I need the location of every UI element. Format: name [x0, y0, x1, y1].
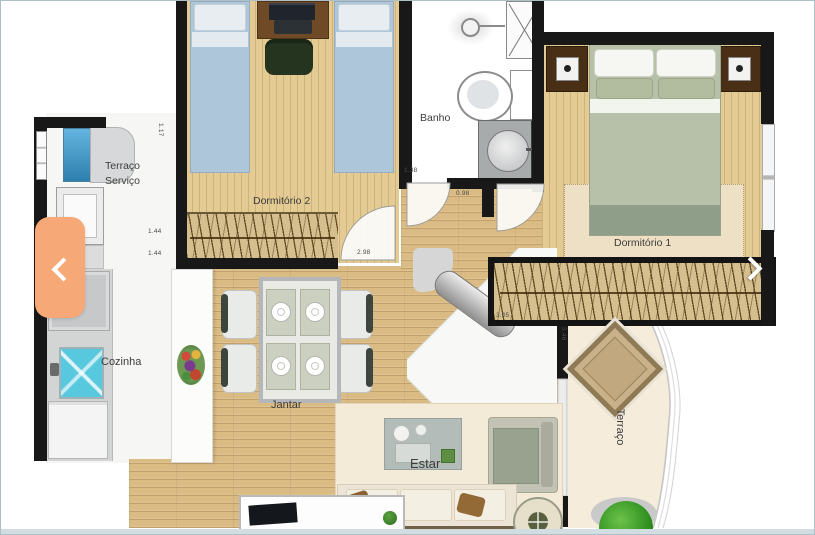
dining-chair: [222, 344, 257, 393]
book: [441, 449, 455, 463]
bed-pillow: [594, 49, 654, 77]
basin-bowl: [487, 130, 529, 172]
room-label-jantar: Jantar: [271, 399, 302, 411]
bed-cushion: [658, 78, 715, 99]
sofa-cushion: [400, 489, 452, 521]
bed-sheet-fold: [590, 99, 720, 113]
single-bed: [190, 1, 250, 173]
next-image-button[interactable]: [736, 248, 770, 288]
refrigerator: [48, 401, 108, 459]
armchair-back: [541, 422, 553, 487]
kitchen-sink: [59, 347, 104, 399]
dimension-label: 3.46: [560, 327, 567, 340]
bedroom1-wall-right-a: [761, 32, 774, 124]
card-bottom-strip: [1, 529, 815, 535]
armchair: [488, 417, 558, 493]
chevron-left-icon: [51, 257, 75, 281]
bedroom1-wall-top: [544, 32, 763, 45]
office-chair: [265, 39, 313, 75]
dimension-label: 1.44: [148, 250, 161, 257]
room-label-estar: Estar: [410, 456, 440, 471]
tv-rack: [239, 495, 405, 532]
dining-chair: [337, 344, 372, 393]
toilet-bowl: [457, 71, 513, 122]
fruit-bowl: [177, 345, 205, 385]
hall-closet-wall: [482, 183, 494, 217]
bedroom2-wall-right: [399, 1, 412, 183]
dimension-label: 1.17: [157, 123, 164, 136]
room-label-dormitorio2: Dormitório 2: [253, 195, 310, 207]
keyboard: [274, 20, 312, 34]
armchair-seat: [493, 428, 539, 484]
floor-plan-viewer: 3.05 Terraço Serviço Dormitório 2 Banho …: [0, 0, 815, 535]
dining-chair: [222, 290, 257, 339]
single-bed: [334, 1, 394, 173]
room-label-banho: Banho: [420, 112, 450, 124]
computer-monitor: [269, 3, 315, 20]
washing-machine: [63, 128, 92, 182]
room-label-cozinha: Cozinha: [101, 356, 141, 368]
dimension-label: 0.98: [456, 190, 469, 197]
room-label-dormitorio1: Dormitório 1: [614, 237, 671, 249]
toilet-bowl-inner: [467, 80, 499, 109]
rack-plant: [383, 511, 397, 525]
sink-faucet: [50, 363, 59, 376]
room-label-terraco: Terraço: [614, 392, 626, 462]
service-wall-top: [34, 117, 106, 128]
bedroom1-window: [762, 124, 775, 232]
door-swing-bedroom1: [495, 182, 547, 234]
floor-strip-bottom-left: [129, 459, 176, 528]
door-swing-bathroom: [405, 181, 453, 229]
bed-pillow: [656, 49, 716, 77]
chevron-right-icon: [738, 256, 762, 280]
dimension-label: 1.44: [148, 228, 161, 235]
bed-cushion: [596, 78, 653, 99]
table-setting: [266, 343, 296, 390]
nightstand: [718, 46, 761, 92]
dimension-label: 1.38: [404, 167, 417, 174]
dimension-label: 2.98: [357, 249, 370, 256]
bed-foot-band: [590, 205, 720, 235]
plate-small: [415, 424, 427, 436]
table-setting: [300, 289, 330, 336]
room-label-terraco-servico: Terraço Serviço: [105, 159, 140, 188]
table-setting: [266, 289, 296, 336]
prev-image-button[interactable]: [35, 217, 85, 318]
wardrobe: 3.05: [488, 257, 776, 326]
tv: [248, 502, 297, 525]
bedroom2-wall-bottom: [176, 258, 338, 269]
dimension-label: 3.05: [496, 312, 509, 319]
bathroom-wall-right: [532, 1, 544, 181]
fan-line: [479, 25, 505, 27]
dining-chair: [337, 290, 372, 339]
table-setting: [300, 343, 330, 390]
exhaust-fan-symbol: [461, 18, 480, 37]
plate: [393, 425, 410, 442]
service-window: [36, 131, 47, 180]
nightstand: [546, 46, 588, 92]
double-bed: [589, 44, 721, 236]
bedroom2-wall-left: [176, 1, 187, 269]
wardrobe: [187, 212, 338, 262]
dining-table: [259, 277, 341, 403]
